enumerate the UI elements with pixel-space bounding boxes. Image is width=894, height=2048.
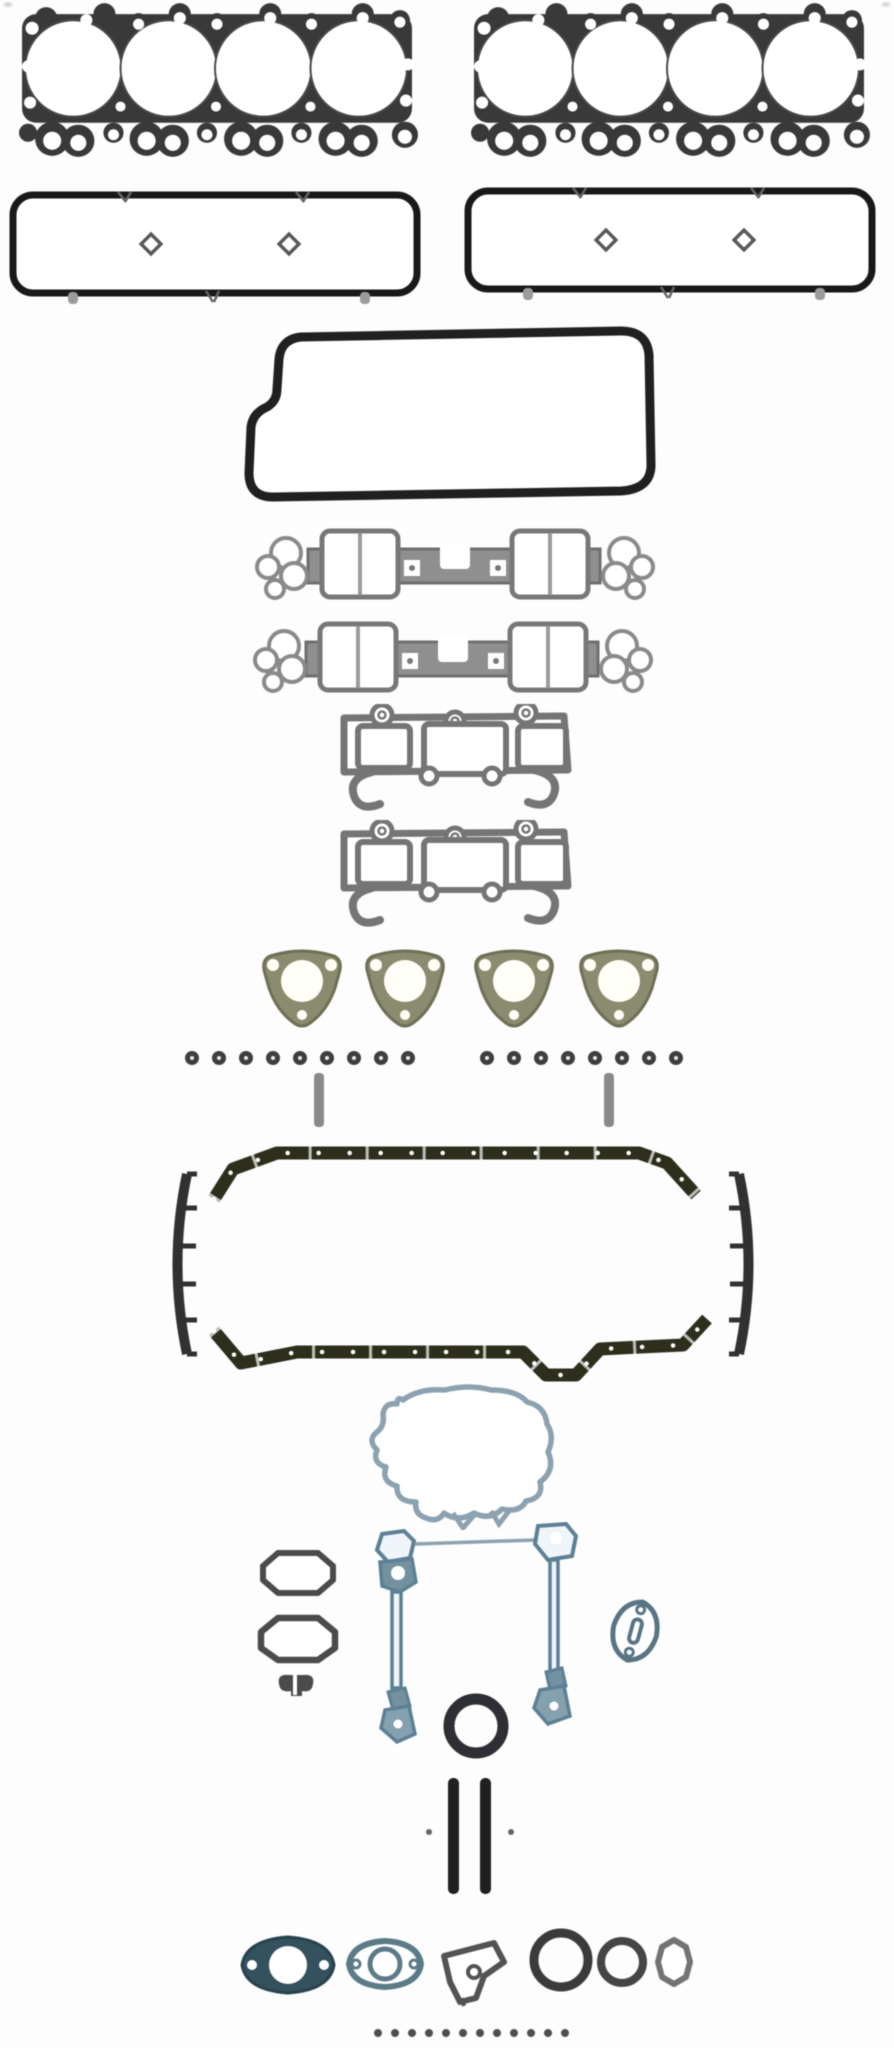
dowel-left: [313, 1072, 325, 1128]
valve-cover-gasket-right: [463, 184, 877, 302]
photo-edge-smudge: [878, 0, 894, 9]
seal-row-left: [185, 1050, 445, 1066]
seal-row-bottom: [370, 2024, 585, 2042]
outlet-gasket-upper: [256, 1546, 340, 1600]
gasket-set-photo-canvas: [0, 0, 894, 2048]
o-ring-medium: [596, 1934, 648, 1990]
oil-pan-side-seal-right: [726, 1168, 766, 1360]
head-gasket-right: [468, 2, 870, 165]
oil-pan-rail-top: [205, 1135, 705, 1205]
seal-row-right: [480, 1050, 710, 1066]
intake-manifold-gasket-lower: [250, 616, 656, 700]
flange-gasket-solid: [238, 1926, 338, 2004]
valve-cover-gasket-left: [8, 188, 422, 306]
exhaust-flange-gasket-3: [470, 948, 558, 1034]
photo-edge-smudge: [0, 0, 16, 9]
gasket-set-photo: [0, 0, 894, 2048]
oil-pan-side-seal-left: [160, 1168, 200, 1360]
exhaust-manifold-gasket-upper: [328, 704, 580, 816]
exhaust-flange-gasket-2: [361, 948, 449, 1034]
exhaust-flange-gasket-4: [575, 948, 663, 1034]
o-ring-octagonal: [654, 1936, 694, 1988]
small-twin-grommet: [276, 1672, 316, 1700]
cover-plate-gasket: [241, 325, 661, 507]
outlet-gasket-lower: [254, 1610, 342, 1668]
exhaust-manifold-gasket-lower: [328, 820, 580, 932]
round-seal: [441, 1691, 511, 1761]
o-ring-large: [528, 1926, 594, 1994]
head-gasket-left: [16, 2, 418, 165]
pump-mount-oval-gasket: [605, 1598, 665, 1664]
front-cover-gasket: [341, 1380, 569, 1530]
seal-strip-left: [368, 1528, 420, 1746]
seal-strip-right: [528, 1522, 582, 1744]
flange-gasket-outline: [345, 1932, 425, 1996]
dowel-right: [603, 1072, 615, 1128]
bracket-gasket: [438, 1938, 510, 2008]
oil-pan-rail-bottom: [205, 1305, 715, 1389]
connector-strip: [410, 1536, 540, 1548]
exhaust-flange-gasket-1: [258, 948, 346, 1034]
intake-manifold-gasket-upper: [252, 523, 658, 607]
dowel-pin-pair: [424, 1774, 516, 1898]
